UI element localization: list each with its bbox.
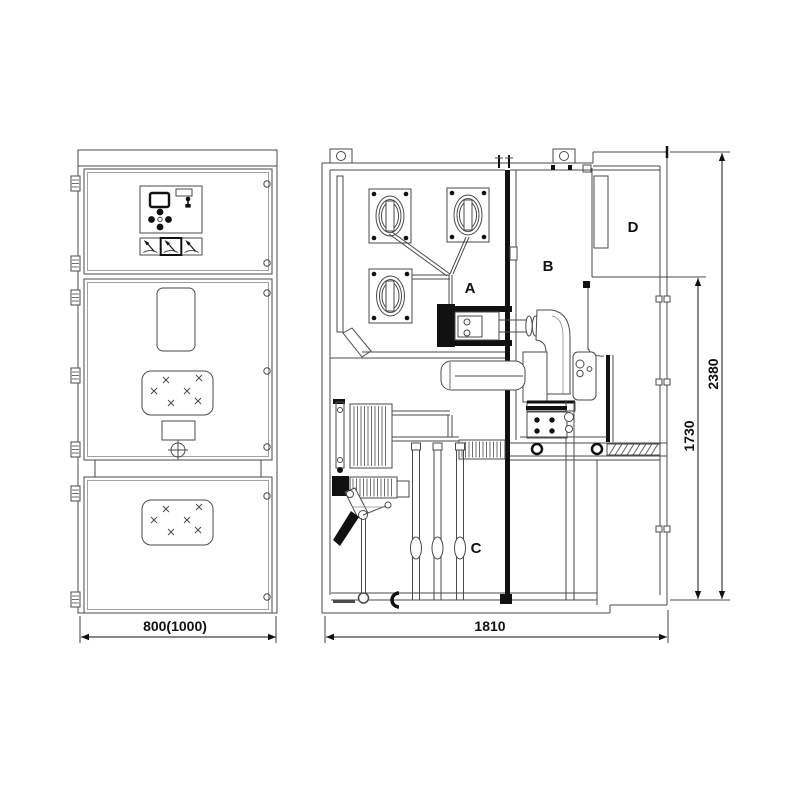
lower-height-dimension: 1730 [667, 277, 706, 599]
side-section-view: A B C D 1810 2380 1730 [322, 146, 730, 643]
partition-foot [500, 594, 512, 604]
compartment-label-b: B [543, 258, 554, 275]
compartment-label-d: D [628, 219, 639, 236]
lower-height-value: 1730 [681, 420, 697, 451]
roof-bolts [495, 146, 667, 172]
operating-handle [333, 511, 359, 546]
lifting-lug [330, 149, 352, 163]
side-width-dimension: 1810 [325, 610, 668, 643]
roller [592, 444, 602, 454]
power-cable [432, 443, 443, 600]
rear-wall-flanges [656, 296, 670, 532]
lifting-lug [553, 149, 575, 163]
busbar-bushing [369, 269, 412, 323]
cable-bus-links [392, 411, 459, 441]
cable-compartment [332, 399, 512, 607]
cabinet-front-outline [78, 150, 277, 613]
front-view: 800(1000) [71, 150, 277, 643]
drawing-svg: 800(1000) [0, 0, 800, 800]
circuit-breaker-pole [437, 304, 539, 347]
side-width-value: 1810 [474, 618, 505, 634]
rear-duct-assembly [566, 281, 613, 600]
front-width-dimension: 800(1000) [80, 616, 276, 643]
front-stiffener [337, 176, 343, 332]
power-cable [411, 443, 422, 600]
overall-height-value: 2380 [705, 358, 721, 389]
compartment-label-c: C [471, 540, 482, 557]
power-cable [455, 443, 466, 600]
overall-height-dimension: 2380 [670, 152, 730, 600]
sloped-deflector [343, 328, 371, 357]
front-width-value: 800(1000) [143, 618, 207, 634]
switchgear-technical-drawing: 800(1000) [0, 0, 800, 800]
busbar-bushing [447, 188, 489, 242]
compartment-label-a: A [465, 280, 476, 297]
earthing-switch [333, 488, 399, 607]
lv-panel [594, 176, 608, 248]
partition-bracket [510, 247, 517, 260]
roller [532, 444, 542, 454]
withdrawal-mechanism [510, 406, 667, 460]
